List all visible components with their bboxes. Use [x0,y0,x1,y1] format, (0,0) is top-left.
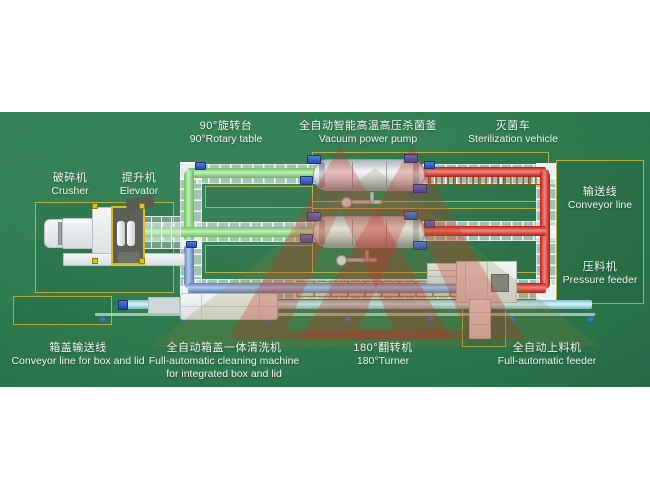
label-en: Conveyor line [490,199,650,212]
label-cn: 全自动上料机 [437,342,650,355]
foot [139,258,145,264]
label-en: Elevator [29,185,249,198]
tank-seam [352,219,353,245]
label-pressure-feeder: 压料机 Pressure feeder [490,261,650,287]
label-en: Full-automatic feeder [437,355,650,368]
autoclave-tank-1 [313,159,425,191]
zone-bottom-left [13,296,112,325]
conveyor-red-middle [424,226,546,236]
elevator-rib [171,217,172,248]
valve-pump-1 [341,197,352,208]
drive-motor [195,162,206,170]
tank-fitting [307,155,321,164]
panel-line [181,306,277,307]
pipe [352,200,382,204]
drive-motor [118,300,128,310]
drive-motor [300,234,313,243]
panel-line [487,262,488,302]
pipe [365,250,369,262]
drive-motor [424,161,435,169]
rail-support [428,317,433,321]
conveyor-blue-vertical [184,246,194,288]
foot [139,203,145,209]
elevator-frame [141,216,181,249]
cleaning-machine [180,293,278,320]
tank-fitting [404,211,418,220]
label-sterilization-vehicle: 灭菌车 Sterilization vehicle [403,120,623,146]
conveyor-red-top [424,167,546,177]
label-cn: 压料机 [490,261,650,274]
autoclave-tank-2 [313,216,425,248]
elevator-rib [161,217,162,248]
arm-line [470,324,490,325]
step-line [428,276,457,277]
conveyor-blue-bottom [188,283,470,293]
label-en: for integrated box and lid [114,368,334,381]
rail-support [346,317,351,321]
tank-seam [386,162,387,188]
pipe [370,192,374,204]
tank-fitting [413,184,427,193]
rail-support [588,317,593,321]
elevator-rib [151,217,152,248]
drive-motor [424,220,435,228]
tank-seam [386,219,387,245]
tank-ring [319,162,325,188]
truck-windshield [58,222,62,245]
step-line [428,270,457,271]
cleaning-infeed [148,297,180,314]
valve-pump-2 [336,255,347,266]
label-elevator: 提升机 Elevator [29,172,249,198]
label-feeder: 全自动上料机 Full-automatic feeder [437,342,650,368]
crusher-discharge [118,252,140,263]
tank-fitting [307,212,321,221]
foot [92,203,98,209]
crusher-roller [117,221,125,246]
arm-line [470,312,490,313]
zone-lower-gap [205,245,313,273]
label-en: Pressure feeder [490,274,650,287]
plant-layout-diagram: 破碎机 Crusher 提升机 Elevator 90°旋转台 90°Rotar… [0,0,650,500]
foot [92,258,98,264]
label-cn: 灭菌车 [403,120,623,133]
tank-fitting [404,154,418,163]
label-cn: 输送线 [490,186,650,199]
label-en: Sterilization vehicle [403,133,623,146]
rail-support [510,317,515,321]
tank-ring [319,219,325,245]
turner-arm [469,299,491,339]
label-cn: 提升机 [29,172,249,185]
panel-line [465,262,466,302]
feeder-step-platform [427,263,458,284]
tank-fitting [413,241,427,250]
drive-motor [186,241,197,248]
pipe [347,258,377,262]
rail-support [100,317,105,321]
crusher-roller [127,221,135,246]
tank-seam [352,162,353,188]
drive-motor [300,176,313,185]
label-conveyor-line: 输送线 Conveyor line [490,186,650,212]
